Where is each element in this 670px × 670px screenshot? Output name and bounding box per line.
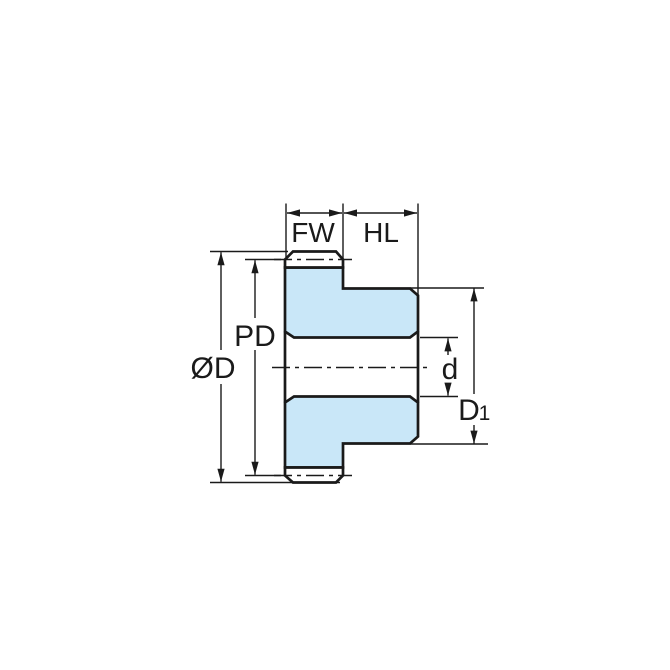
label-pitch-diameter: PD	[234, 320, 276, 353]
label-hub-diameter-subscript: 1	[479, 402, 491, 425]
gear-cross-section-diagram: FW HL ØD PD d D 1	[0, 0, 670, 670]
label-hub-diameter: D	[458, 394, 480, 427]
gear-technical-drawing-page: FW HL ØD PD d D 1	[0, 0, 670, 670]
label-outside-diameter: ØD	[191, 352, 236, 385]
label-face-width: FW	[291, 217, 335, 248]
label-bore-diameter: d	[442, 353, 459, 386]
gear-lower-section	[285, 397, 418, 468]
gear-upper-section	[285, 268, 418, 338]
label-hub-length: HL	[363, 217, 399, 248]
